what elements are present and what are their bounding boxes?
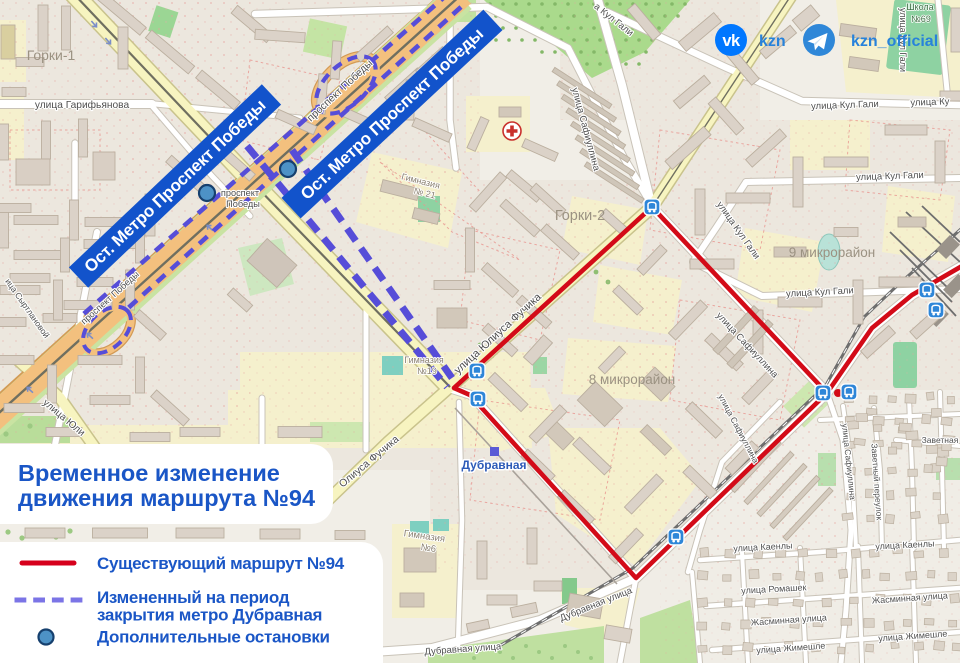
svg-text:Школа: Школа xyxy=(906,2,933,12)
svg-text:Гимназия: Гимназия xyxy=(404,355,444,365)
svg-text:vk: vk xyxy=(722,32,741,50)
svg-text:движения маршрута №94: движения маршрута №94 xyxy=(18,485,315,511)
svg-text:Горки-2: Горки-2 xyxy=(555,208,605,224)
svg-text:улица Гарифьянова: улица Гарифьянова xyxy=(35,99,130,111)
svg-text:Дубравная: Дубравная xyxy=(461,458,526,472)
svg-text:№19: №19 xyxy=(417,366,437,376)
svg-text:№6: №6 xyxy=(420,542,437,555)
svg-text:Измененный на период: Измененный на период xyxy=(97,588,290,607)
svg-text:Горки-1: Горки-1 xyxy=(27,47,76,63)
svg-text:закрытия метро Дубравная: закрытия метро Дубравная xyxy=(97,606,322,625)
svg-text:9 микрорайон: 9 микрорайон xyxy=(789,245,876,260)
svg-text:проспект: проспект xyxy=(221,188,260,198)
svg-text:kzn: kzn xyxy=(759,33,786,50)
svg-text:Дополнительные остановки: Дополнительные остановки xyxy=(97,628,330,647)
svg-text:улица Ку: улица Ку xyxy=(910,96,950,108)
svg-text:Заветная: Заветная xyxy=(922,435,959,445)
svg-text:№69: №69 xyxy=(911,14,931,24)
svg-text:Существующий маршрут №94: Существующий маршрут №94 xyxy=(97,554,345,573)
svg-text:8 микрорайон: 8 микрорайон xyxy=(589,372,676,387)
svg-text:Победы: Победы xyxy=(226,199,260,209)
svg-text:kzn_official: kzn_official xyxy=(851,33,938,50)
svg-text:Временное изменение: Временное изменение xyxy=(18,460,280,486)
